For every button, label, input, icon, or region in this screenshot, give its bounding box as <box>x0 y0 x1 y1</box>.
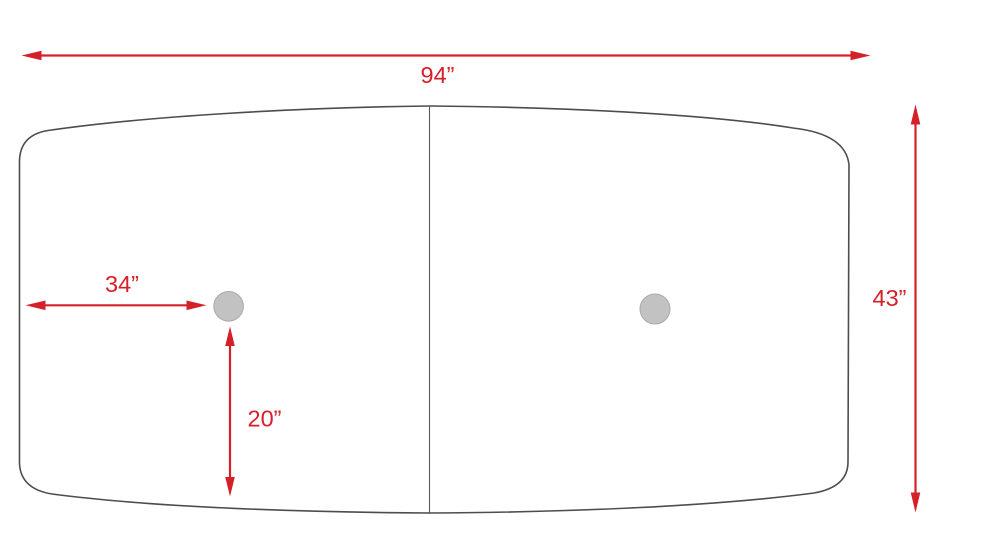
svg-text:94”: 94” <box>421 62 455 88</box>
svg-text:43”: 43” <box>873 285 907 311</box>
svg-text:34”: 34” <box>105 271 139 297</box>
svg-text:20”: 20” <box>248 406 282 432</box>
